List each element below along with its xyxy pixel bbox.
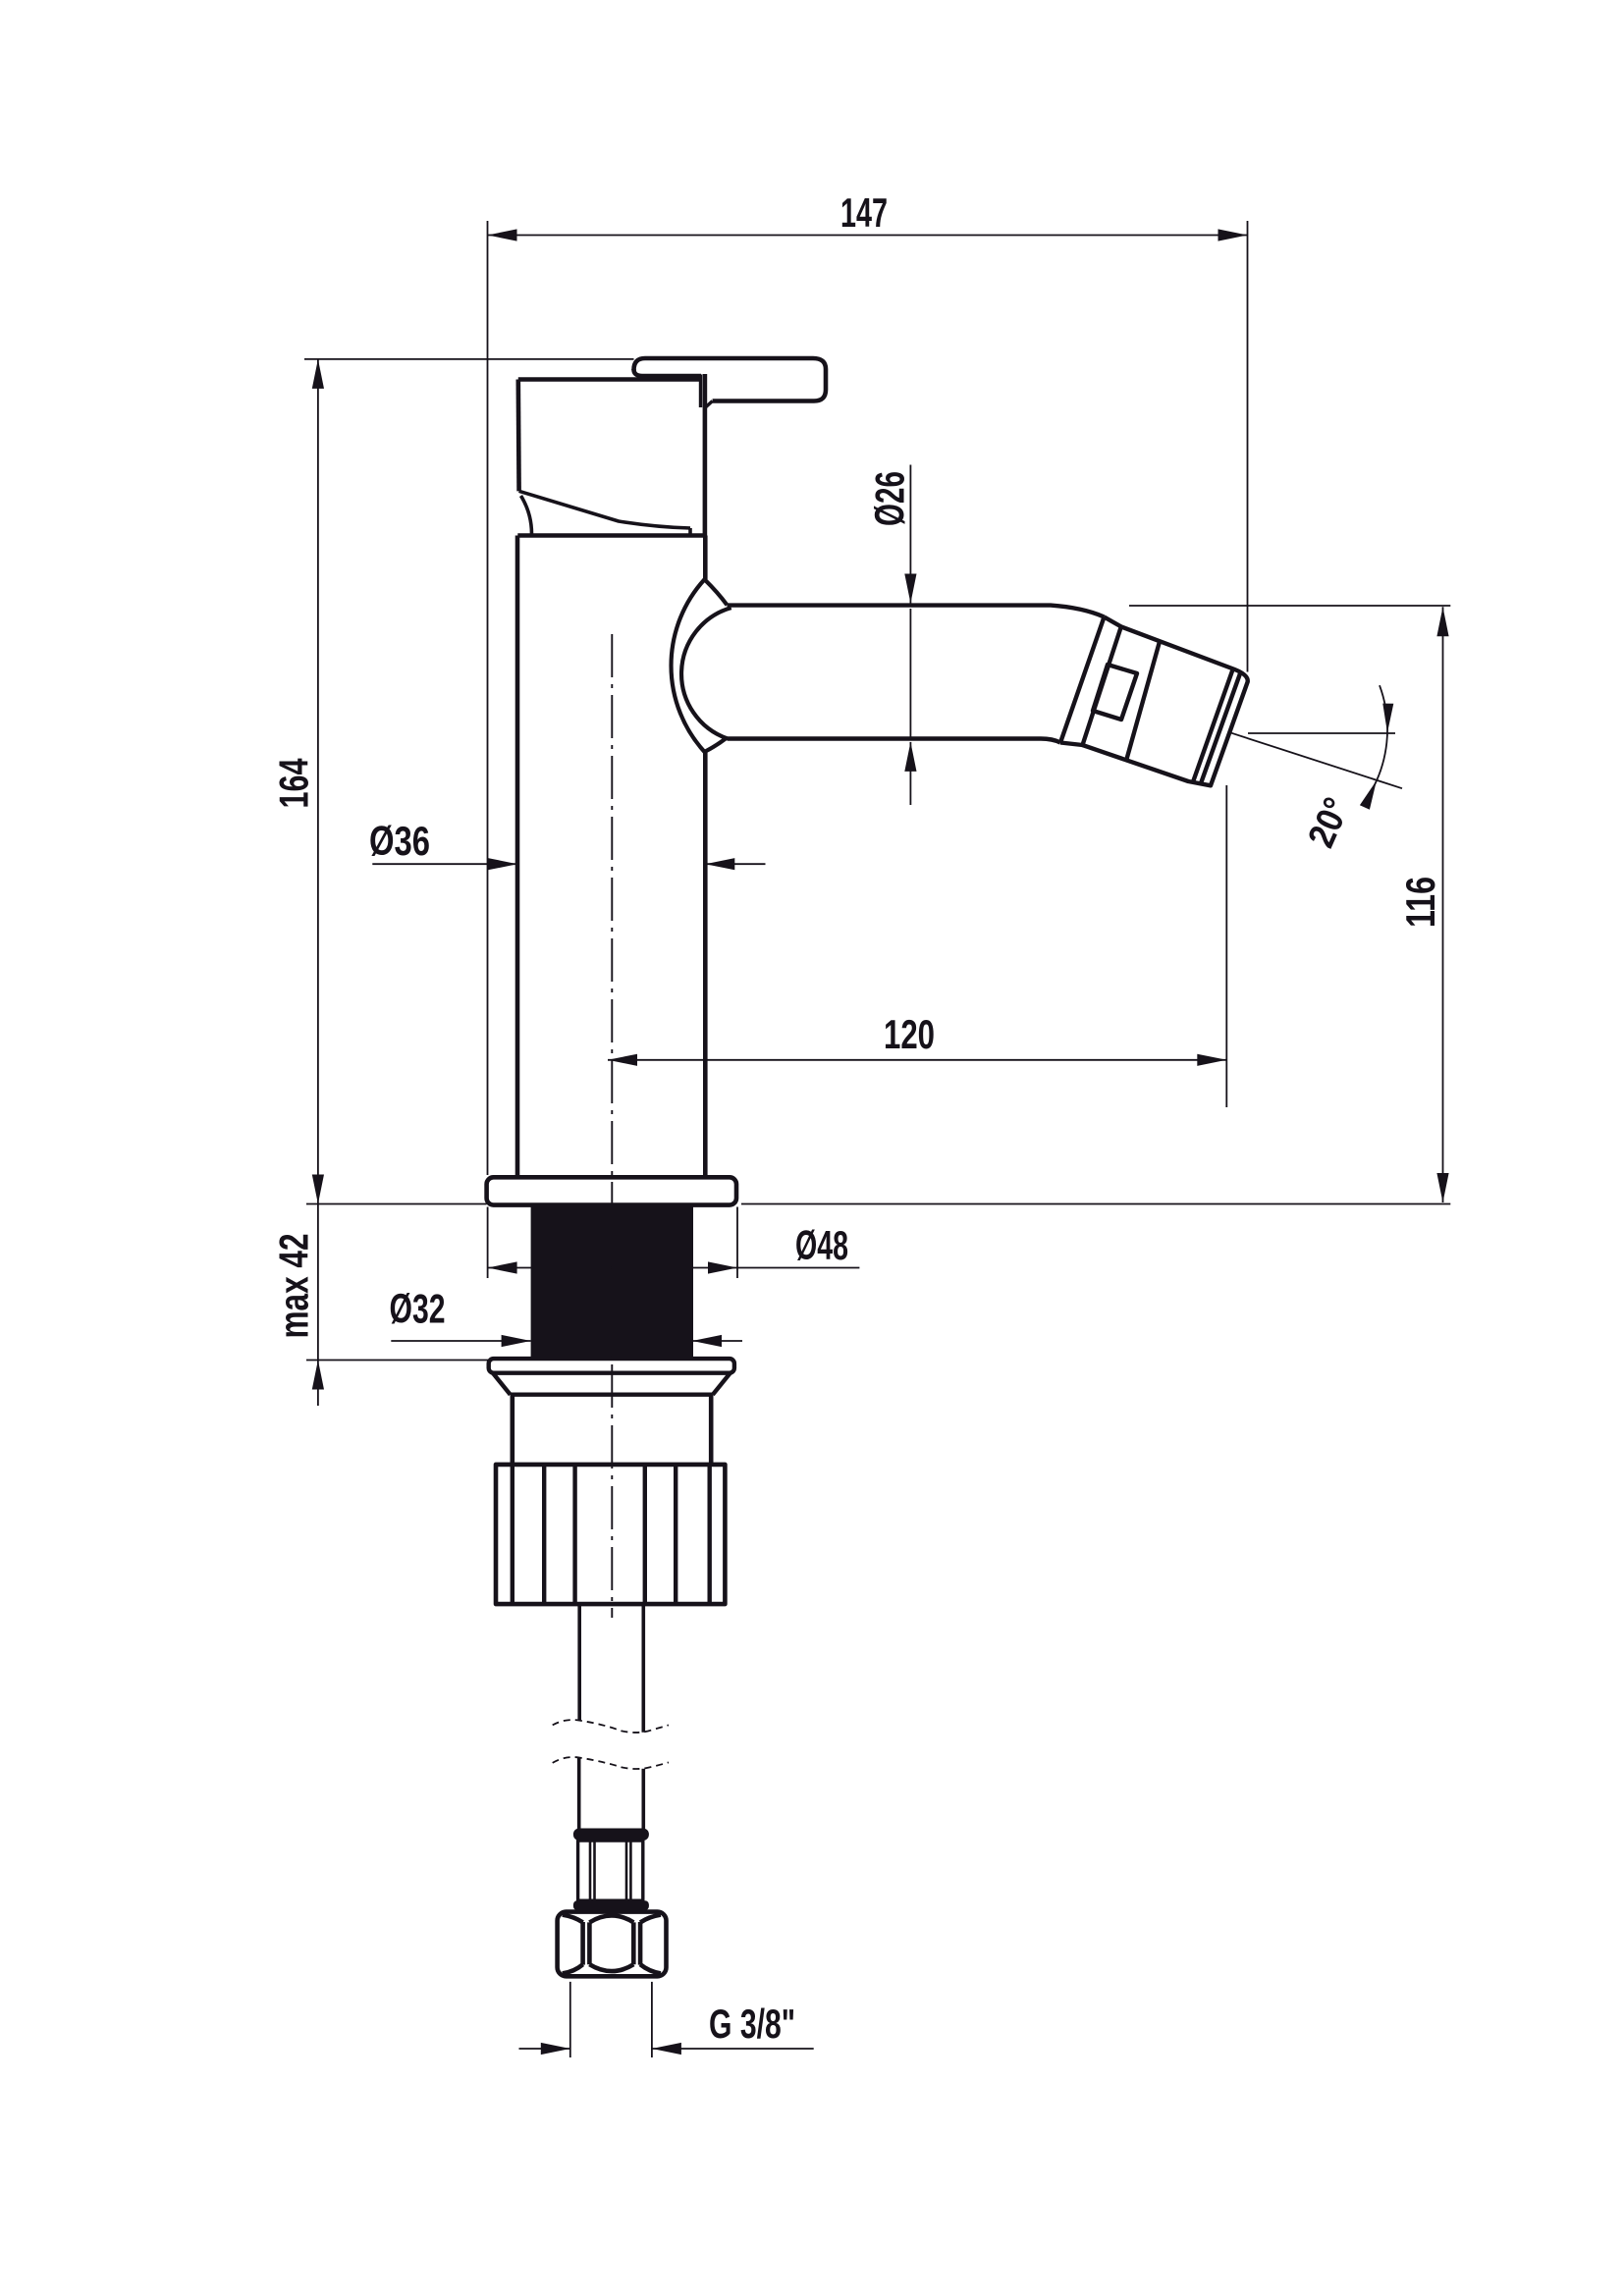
svg-text:116: 116: [1397, 877, 1443, 928]
svg-text:164: 164: [271, 759, 317, 809]
svg-text:Ø32: Ø32: [390, 1286, 446, 1332]
svg-text:max 42: max 42: [271, 1234, 317, 1339]
svg-text:G 3/8": G 3/8": [709, 2001, 795, 2047]
svg-text:120: 120: [884, 1011, 935, 1057]
svg-text:Ø48: Ø48: [795, 1222, 848, 1268]
svg-text:Ø26: Ø26: [867, 471, 913, 526]
svg-text:147: 147: [840, 189, 888, 236]
svg-text:Ø36: Ø36: [369, 818, 430, 864]
